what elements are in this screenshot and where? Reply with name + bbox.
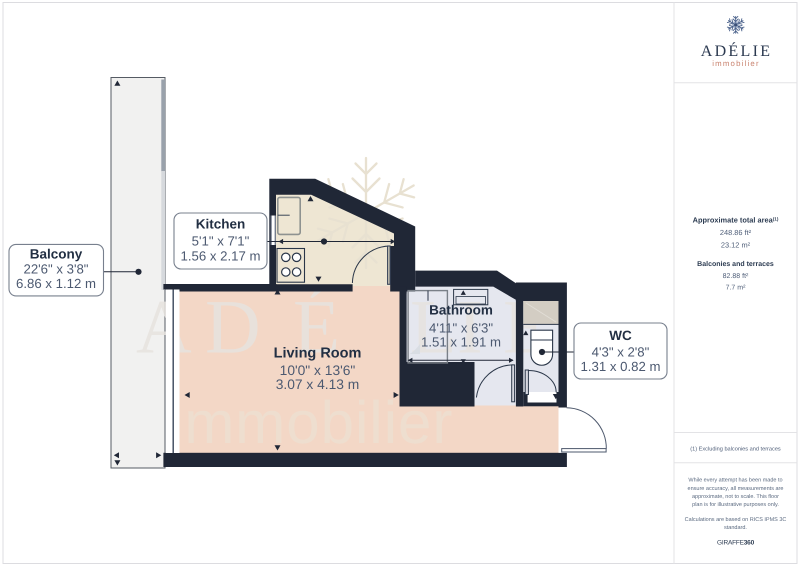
svg-text:immobilier: immobilier bbox=[712, 59, 760, 68]
svg-text:GIRAFFE360: GIRAFFE360 bbox=[717, 540, 755, 547]
svg-text:ensure accuracy, all measureme: ensure accuracy, all measurements are bbox=[688, 486, 784, 492]
svg-text:(1) Excluding balconies and te: (1) Excluding balconies and terraces bbox=[690, 446, 781, 453]
svg-text:Calculations are based on RICS: Calculations are based on RICS IPMS 3C bbox=[685, 517, 787, 523]
svg-text:standard.: standard. bbox=[724, 525, 747, 531]
svg-text:Living Room: Living Room bbox=[274, 346, 362, 362]
svg-text:82.88 ft²: 82.88 ft² bbox=[723, 272, 749, 280]
svg-text:Kitchen: Kitchen bbox=[196, 217, 246, 232]
svg-text:7.7 m²: 7.7 m² bbox=[726, 284, 747, 291]
svg-text:10'0" x 13'6": 10'0" x 13'6" bbox=[280, 363, 356, 378]
svg-text:Approximate total area(1): Approximate total area(1) bbox=[693, 216, 779, 225]
svg-text:ADÉLIE: ADÉLIE bbox=[701, 42, 773, 60]
svg-text:5'1" x 7'1": 5'1" x 7'1" bbox=[192, 234, 250, 249]
svg-text:While every attempt has been m: While every attempt has been made to bbox=[688, 477, 782, 483]
svg-text:1.31 x 0.82 m: 1.31 x 0.82 m bbox=[581, 359, 661, 374]
svg-text:4'11" x 6'3": 4'11" x 6'3" bbox=[429, 321, 493, 336]
svg-text:248.86 ft²: 248.86 ft² bbox=[720, 228, 752, 237]
svg-text:23.12 m²: 23.12 m² bbox=[721, 240, 751, 249]
svg-text:Balconies and terraces: Balconies and terraces bbox=[697, 260, 774, 268]
svg-text:22'6" x 3'8": 22'6" x 3'8" bbox=[24, 262, 89, 277]
svg-text:3.07 x 4.13 m: 3.07 x 4.13 m bbox=[276, 377, 360, 392]
svg-text:Bathroom: Bathroom bbox=[429, 303, 493, 318]
svg-text:1.51 x 1.91 m: 1.51 x 1.91 m bbox=[421, 335, 501, 350]
svg-text:plan is for illustrative purpo: plan is for illustrative purposes only. bbox=[692, 502, 779, 508]
svg-text:4'3" x 2'8": 4'3" x 2'8" bbox=[592, 345, 650, 360]
svg-text:Balcony: Balcony bbox=[30, 247, 83, 262]
svg-text:WC: WC bbox=[609, 328, 632, 343]
svg-text:1.56 x 2.17 m: 1.56 x 2.17 m bbox=[181, 249, 261, 264]
svg-text:6.86 x 1.12 m: 6.86 x 1.12 m bbox=[16, 276, 96, 291]
svg-text:approximate, not to scale. Thi: approximate, not to scale. This floor bbox=[692, 494, 779, 500]
